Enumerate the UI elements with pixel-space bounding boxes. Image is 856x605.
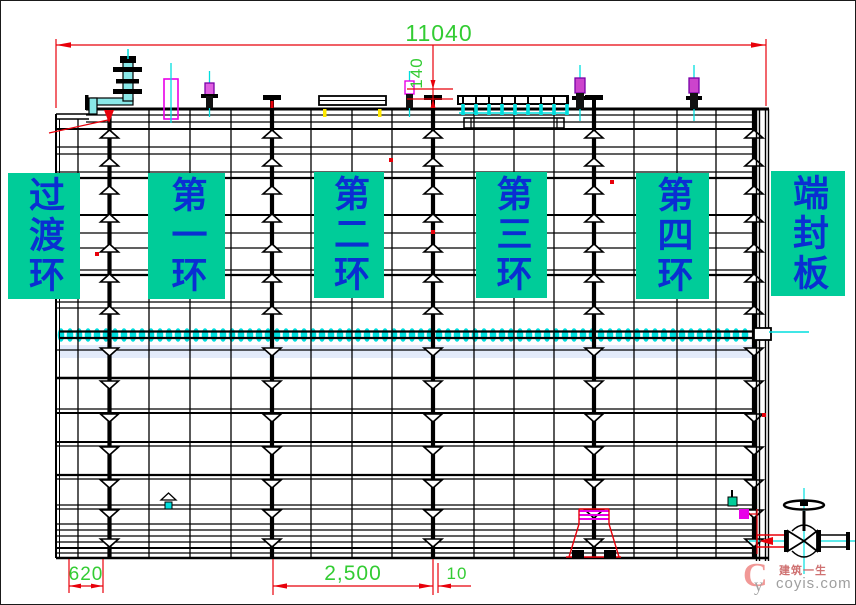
dimension-top-offset: 140 <box>407 45 453 108</box>
label-ring-4: 第四环 <box>636 173 709 299</box>
label-transition-ring: 过渡环 <box>8 173 80 299</box>
dimension-ring-gap: 10 <box>438 563 471 593</box>
dim-text-ring-width: 2,500 <box>324 562 382 585</box>
dimension-ring-width: 2,500 <box>273 559 433 595</box>
small-nozzle-3 <box>572 65 588 121</box>
small-nozzle-4 <box>686 65 702 121</box>
cyan-fitting-mark <box>161 493 176 509</box>
cad-drawing-canvas: 11040 140 620 2,500 10 过渡环 第一环 第二环 第三环 第… <box>0 0 856 605</box>
ghost-band <box>59 345 752 358</box>
watermark: C y 建筑一生 coyis.com <box>741 559 855 603</box>
dim-text-top-offset: 140 <box>407 57 426 88</box>
teal-fitting <box>728 497 737 506</box>
pipe-nozzle-with-elbow <box>85 49 142 114</box>
walkway-end-cap <box>754 328 771 340</box>
magenta-nozzle-outline <box>164 63 178 123</box>
watermark-logo-sub: y <box>754 575 763 596</box>
dim-text-transition-ring: 620 <box>69 564 104 585</box>
serrated-walkway-band <box>58 328 749 342</box>
dim-text-ring-gap: 10 <box>447 564 468 583</box>
watermark-site: coyis.com <box>776 575 852 592</box>
dim-text-overall-length: 11040 <box>405 20 472 46</box>
dimension-transition-ring: 620 <box>69 559 104 593</box>
tank-elevation-drawing: 11040 140 620 2,500 10 <box>1 1 856 605</box>
magenta-marker <box>739 509 749 519</box>
label-end-plate: 端封板 <box>771 171 845 296</box>
label-ring-3: 第三环 <box>476 172 547 298</box>
label-ring-2: 第二环 <box>314 172 384 298</box>
label-ring-1: 第一环 <box>148 173 225 299</box>
yellow-tick <box>378 109 382 117</box>
yellow-tick <box>323 109 327 117</box>
